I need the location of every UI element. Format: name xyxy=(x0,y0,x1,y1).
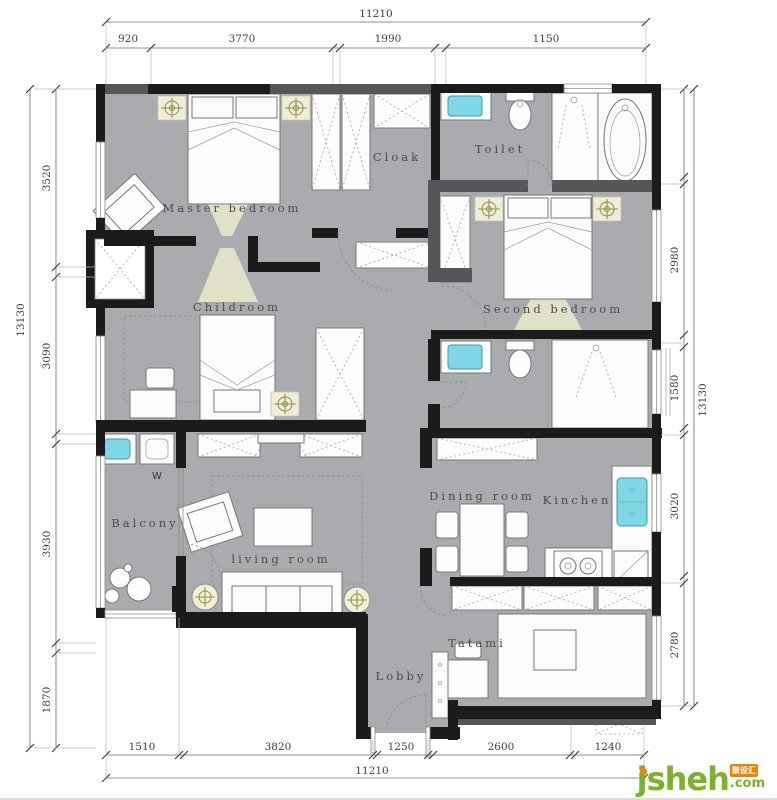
dining-table xyxy=(460,504,504,576)
room-label-lobby: Lobby xyxy=(376,669,427,683)
shoe-cabinet xyxy=(432,652,448,718)
shower-room xyxy=(552,340,648,428)
dim-bottom-segment-3: 2600 xyxy=(488,741,515,753)
dimension-left: 13130 3520 3090 3930 1870 xyxy=(15,85,96,752)
watermark-tld: .com xyxy=(730,777,765,790)
nightstand-downlight-icon xyxy=(282,96,310,120)
wardrobe-icon xyxy=(316,328,364,420)
dim-bottom-segment-0: 1510 xyxy=(129,741,156,753)
dim-top-segment-0: 920 xyxy=(118,33,138,45)
stove-icon xyxy=(554,551,602,581)
watermark-brand-wrap: jsheh xyxy=(637,762,729,796)
watermark-logo: jsheh 聚设汇 .com xyxy=(637,762,765,796)
watermark-brand: jsheh xyxy=(637,760,729,798)
dim-right-segment-3: 2780 xyxy=(669,632,681,659)
kitchen-sink-icon xyxy=(617,478,647,526)
watermark-side: 聚设汇 .com xyxy=(730,764,765,790)
nightstand-downlight-icon xyxy=(593,197,621,221)
room-label-kitchen: Kinchen xyxy=(543,493,612,507)
floor-lamp-icon xyxy=(344,587,370,613)
cabinet-row xyxy=(437,438,537,460)
coffee-table xyxy=(254,508,312,546)
floor-plan-drawing: W xyxy=(0,0,777,800)
room-label-tatami: Tatami xyxy=(448,636,506,650)
nightstand-downlight-icon xyxy=(475,197,503,221)
dim-top-total: 11210 xyxy=(359,8,392,20)
room-label-toilet: Toilet xyxy=(475,142,525,156)
dim-top-segment-2: 1990 xyxy=(375,33,402,45)
dim-right-segment-0: 2980 xyxy=(669,247,681,274)
bathtub-icon xyxy=(598,93,652,188)
dim-bottom-segment-4: 1240 xyxy=(595,741,622,753)
floor-plan-page: W xyxy=(0,0,777,800)
dim-bottom-segment-2: 1250 xyxy=(388,741,415,753)
room-label-balcony: Balcony xyxy=(111,516,178,530)
hallway-cabinet xyxy=(356,242,432,268)
dim-bottom-total: 11210 xyxy=(355,765,388,777)
room-label-childroom: Childroom xyxy=(193,300,281,314)
room-label-dining-room: Dining room xyxy=(429,489,535,503)
dim-left-segment-3: 1870 xyxy=(41,687,53,714)
sink-icon xyxy=(448,96,482,116)
sink-icon xyxy=(448,345,482,369)
dimension-top: 11210 920 3770 1990 1150 xyxy=(102,8,650,84)
tv-icon xyxy=(258,434,304,443)
sofa xyxy=(222,572,342,618)
floor-lamp-icon xyxy=(192,584,218,610)
sink-icon xyxy=(104,439,130,459)
cabinet-row xyxy=(452,586,652,610)
washer-icon xyxy=(140,434,174,464)
dim-bottom-segment-1: 3820 xyxy=(265,741,292,753)
dimension-right: 2980 1580 3020 2780 13130 xyxy=(661,85,709,710)
dim-left-total: 13130 xyxy=(15,303,27,336)
dim-right-segment-2: 3020 xyxy=(669,493,681,520)
dim-top-segment-1: 3770 xyxy=(229,33,256,45)
dim-top-segment-3: 1150 xyxy=(533,33,560,45)
dim-left-segment-2: 3930 xyxy=(41,531,53,558)
double-bed xyxy=(504,195,592,299)
double-bed xyxy=(188,94,280,204)
washer-label: W xyxy=(152,471,162,482)
single-bed xyxy=(200,315,275,420)
room-label-master-bedroom: Master bedroom xyxy=(163,201,302,215)
dim-right-total: 13130 xyxy=(697,383,709,416)
downlight-icon xyxy=(271,392,299,416)
dim-left-segment-1: 3090 xyxy=(41,343,53,370)
room-label-living-room: living room xyxy=(231,552,330,566)
nightstand-downlight-icon xyxy=(158,96,186,120)
room-label-second-bedroom: Second bedroom xyxy=(483,302,623,316)
shower-area xyxy=(552,93,598,185)
tatami-table xyxy=(534,630,576,670)
dim-left-segment-0: 3520 xyxy=(41,165,53,192)
room-label-cloak: Cloak xyxy=(373,150,421,164)
watermark-j-dot-icon xyxy=(640,768,647,775)
dim-right-segment-1: 1580 xyxy=(669,375,681,402)
